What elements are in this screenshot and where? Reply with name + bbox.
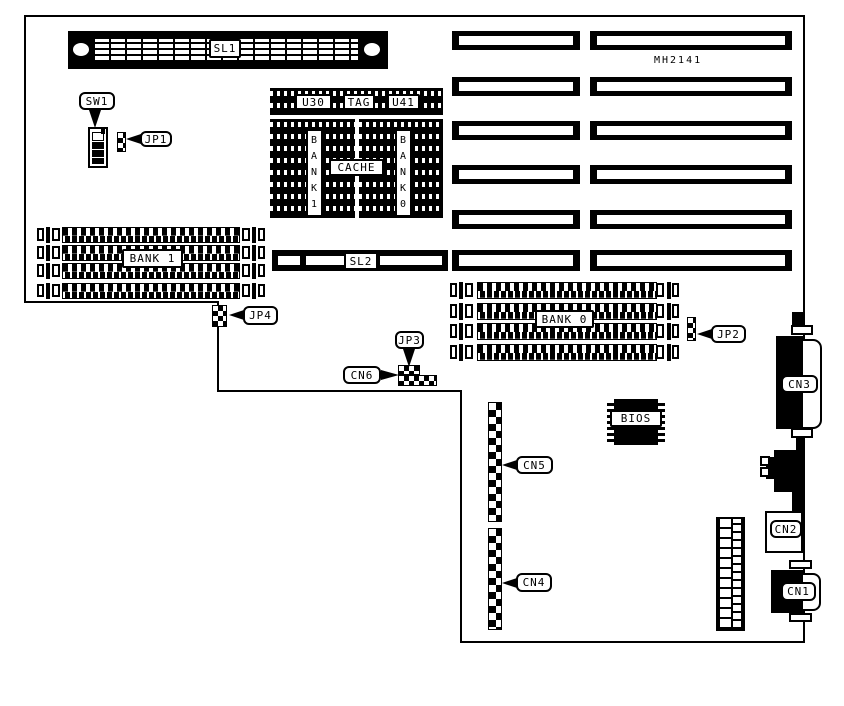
bank1-simm-socket-1-clip-bracket-r <box>242 228 250 241</box>
bank0-simm-socket-4-clip-bar-l <box>459 344 463 361</box>
bank1-simm-socket-1-clip-bracket-l <box>52 228 60 241</box>
bank1-simm-socket-1-clip-outline-l <box>37 228 44 241</box>
expansion-slot-long-3 <box>590 121 792 140</box>
callout-jp2: JP2 <box>711 325 746 343</box>
bank0-simm-socket-1-clip-bar-r <box>667 282 671 299</box>
cn1-mount-tab-top <box>789 560 812 569</box>
bank0-simm-socket-1-clip-bracket-r <box>656 283 664 297</box>
bank0-simm-socket-3-clip-outline-r <box>672 324 679 338</box>
jp3-pointer <box>403 349 415 367</box>
u41-label: U41 <box>387 94 420 110</box>
u30-label: U30 <box>295 94 332 110</box>
bank1-simm-socket-2-clip-bracket-r <box>242 246 250 259</box>
bank0-simm-socket-3-clip-bar-r <box>667 323 671 340</box>
expansion-slot-long-3-contact <box>597 126 785 135</box>
dip-switch-sw1 <box>88 127 108 168</box>
cn2-label: CN2 <box>770 520 802 538</box>
keyboard-connector-body <box>774 450 803 492</box>
bank0-simm-socket-1 <box>477 282 657 299</box>
expansion-slot-short-6 <box>452 250 580 271</box>
expansion-slot-long-5 <box>590 210 792 229</box>
bank0-simm-socket-3-clip-bracket-r <box>656 324 664 338</box>
sw1-switch-2 <box>92 142 104 149</box>
callout-jp3: JP3 <box>395 331 424 349</box>
jumper-jp4 <box>212 305 227 327</box>
bank0-simm-socket-4-clip-bracket-l <box>465 345 473 359</box>
cache-bank0-label: B A N K 0 <box>395 129 412 217</box>
bank0-simm-socket-1-clip-bar-l <box>459 282 463 299</box>
bank1-simm-socket-1-clip-bar-l <box>46 227 50 243</box>
bank0-simm-socket-1-clip-outline-l <box>450 283 457 297</box>
sl1-mounting-hole-right <box>364 43 380 56</box>
expansion-slot-short-4-contact <box>459 170 573 179</box>
keyboard-connector-tab-2 <box>760 467 770 477</box>
jp4-pointer <box>229 310 244 320</box>
keyboard-connector-tab-1 <box>760 456 770 466</box>
bank0-simm-socket-4-clip-bar-r <box>667 344 671 361</box>
expansion-slot-short-5-contact <box>459 215 573 224</box>
power-header-col-right <box>731 519 743 629</box>
tag-label: TAG <box>343 94 375 110</box>
expansion-slot-short-5 <box>452 210 580 229</box>
expansion-slot-long-2 <box>590 77 792 96</box>
bank0-simm-socket-2-clip-bracket-r <box>656 304 664 318</box>
bank1-simm-socket-2-clip-bracket-l <box>52 246 60 259</box>
callout-jp4: JP4 <box>243 306 278 325</box>
expansion-slot-long-6-contact <box>597 255 785 266</box>
bank0-simm-socket-1-clip-bracket-l <box>465 283 473 297</box>
bank1-simm-socket-3-clip-outline-r <box>258 264 265 277</box>
cn6-pointer <box>381 370 399 380</box>
cn3-mount-tab-top <box>791 325 813 335</box>
bank0-simm-socket-2-clip-bar-r <box>667 303 671 320</box>
sl2-label: SL2 <box>344 252 378 270</box>
bank0-simm-socket-4-clip-bracket-r <box>656 345 664 359</box>
sl2-contact-1 <box>278 256 300 265</box>
bank1-simm-socket-3-clip-outline-l <box>37 264 44 277</box>
bank1-simm-socket-1-clip-bar-r <box>252 227 256 243</box>
bank1-simm-socket-3-clip-bracket-r <box>242 264 250 277</box>
expansion-slot-long-1-contact <box>597 36 785 45</box>
bios-label: BIOS <box>610 410 662 427</box>
sl2-contact-2 <box>306 256 344 265</box>
callout-cn6: CN6 <box>343 366 381 384</box>
cn3-label: CN3 <box>781 375 818 393</box>
expansion-slot-long-1 <box>590 31 792 50</box>
jumper-jp1 <box>117 132 126 152</box>
expansion-slot-short-3-contact <box>459 126 573 135</box>
expansion-slot-short-1 <box>452 31 580 50</box>
jp1-pointer <box>126 134 141 144</box>
bank0-simm-socket-2-clip-outline-r <box>672 304 679 318</box>
bank0-label: BANK 0 <box>535 310 594 328</box>
expansion-slot-short-2-contact <box>459 82 573 91</box>
bank1-simm-socket-4-clip-bar-l <box>46 283 50 299</box>
sw1-pointer <box>89 110 101 128</box>
edge-strip-mid <box>792 492 803 512</box>
expansion-slot-long-6 <box>590 250 792 271</box>
expansion-slot-short-3 <box>452 121 580 140</box>
bank0-simm-socket-2-clip-outline-l <box>450 304 457 318</box>
expansion-slot-long-5-contact <box>597 215 785 224</box>
bank1-simm-socket-4-clip-outline-l <box>37 284 44 297</box>
sl1-mounting-hole-left <box>73 43 89 56</box>
bank0-simm-socket-3-clip-bar-l <box>459 323 463 340</box>
connector-cn6 <box>398 375 437 386</box>
bank1-simm-socket-4-clip-bracket-l <box>52 284 60 297</box>
bank1-simm-socket-2-clip-bar-r <box>252 245 256 261</box>
bank0-simm-socket-4 <box>477 344 657 361</box>
cache-label: CACHE <box>329 159 384 176</box>
bank1-simm-socket-1 <box>62 227 240 243</box>
header-cn5 <box>488 402 502 522</box>
bank1-simm-socket-3-clip-bar-r <box>252 263 256 279</box>
power-header <box>716 517 745 631</box>
bank0-simm-socket-1-clip-outline-r <box>672 283 679 297</box>
sl2-contact-3 <box>380 256 442 265</box>
power-header-col-left <box>718 519 731 629</box>
header-cn4 <box>488 528 502 630</box>
cn4-pointer <box>502 578 517 588</box>
bank1-simm-socket-4-clip-bracket-r <box>242 284 250 297</box>
sw1-switch-4 <box>92 158 104 164</box>
bank0-simm-socket-4-clip-outline-l <box>450 345 457 359</box>
expansion-slot-long-4 <box>590 165 792 184</box>
motherboard-diagram: SL1 MH2141 SL2 U30 TAG U41 B A N K 1 B A… <box>0 0 844 706</box>
cn5-pointer <box>502 460 517 470</box>
cn1-label: CN1 <box>781 582 816 601</box>
bank1-label: BANK 1 <box>122 249 183 268</box>
bank1-simm-socket-2-clip-outline-r <box>258 246 265 259</box>
part-number: MH2141 <box>654 55 702 66</box>
jp2-pointer <box>697 329 712 339</box>
bank1-simm-socket-1-clip-outline-r <box>258 228 265 241</box>
bank0-simm-socket-4-clip-outline-r <box>672 345 679 359</box>
callout-sw1: SW1 <box>79 92 115 110</box>
bank0-simm-socket-3-clip-bracket-l <box>465 324 473 338</box>
bank1-simm-socket-3-clip-bar-l <box>46 263 50 279</box>
callout-cn4: CN4 <box>516 573 552 592</box>
bank0-simm-socket-2-clip-bracket-l <box>465 304 473 318</box>
bank0-simm-socket-2-clip-bar-l <box>459 303 463 320</box>
expansion-slot-long-2-contact <box>597 82 785 91</box>
expansion-slot-short-1-contact <box>459 36 573 45</box>
expansion-slot-short-2 <box>452 77 580 96</box>
cn1-mount-tab-bottom <box>789 613 812 622</box>
sw1-notch <box>101 129 105 134</box>
cn3-mount-tab-bottom <box>791 428 813 438</box>
expansion-slot-short-6-contact <box>459 255 573 266</box>
callout-jp1: JP1 <box>140 131 172 147</box>
bank1-simm-socket-4-clip-outline-r <box>258 284 265 297</box>
bank1-simm-socket-2-clip-outline-l <box>37 246 44 259</box>
expansion-slot-short-4 <box>452 165 580 184</box>
bank1-simm-socket-2-clip-bar-l <box>46 245 50 261</box>
sw1-switch-3 <box>92 150 104 157</box>
callout-cn5: CN5 <box>516 456 553 474</box>
bank1-simm-socket-3-clip-bracket-l <box>52 264 60 277</box>
cache-bank1-label: B A N K 1 <box>306 129 323 217</box>
bank1-simm-socket-4 <box>62 283 240 299</box>
sl1-label: SL1 <box>209 39 241 58</box>
bank1-simm-socket-4-clip-bar-r <box>252 283 256 299</box>
jumper-jp2 <box>687 317 696 341</box>
bank0-simm-socket-3-clip-outline-l <box>450 324 457 338</box>
expansion-slot-long-4-contact <box>597 170 785 179</box>
